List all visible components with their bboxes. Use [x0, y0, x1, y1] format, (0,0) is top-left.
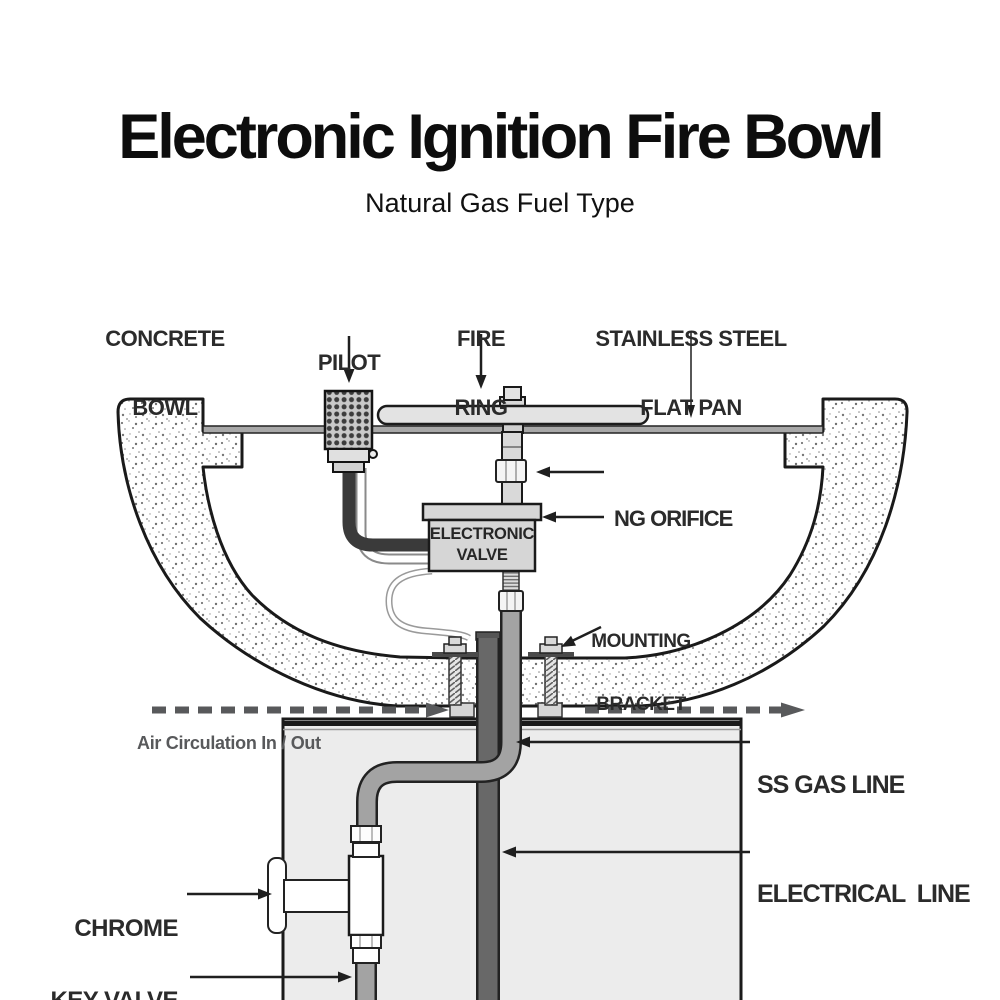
label-ng-orifice: NG ORIFICE [614, 461, 732, 576]
label-air-circulation: Air Circulation In / Out [137, 686, 321, 801]
label-mounting-bracket: MOUNTING BRACKET [591, 589, 690, 757]
valve-outlet-fitting [499, 571, 523, 611]
label-pilot: PILOT [318, 305, 380, 420]
label-gas-line: GAS LINE [72, 960, 181, 1000]
label-concrete-bowl: CONCRETE BOWL [105, 281, 224, 465]
page-title: Electronic Ignition Fire Bowl [0, 101, 1000, 173]
pilot-tubes [349, 468, 430, 559]
electrical-line-shape [476, 632, 500, 1000]
label-electronic-valve: ELECTRONIC VALVE [429, 524, 535, 566]
label-flat-pan: STAINLESS STEEL FLAT PAN [595, 281, 786, 465]
diagram-page: Electronic Ignition Fire Bowl Natural Ga… [0, 0, 1000, 1000]
label-fire-ring: FIRE RING [455, 281, 508, 465]
igniter-wire [389, 571, 469, 638]
page-subtitle: Natural Gas Fuel Type [0, 188, 1000, 219]
label-ss-gas-line: SS GAS LINE [757, 728, 904, 843]
label-electrical-line: ELECTRICAL LINE [757, 837, 970, 952]
